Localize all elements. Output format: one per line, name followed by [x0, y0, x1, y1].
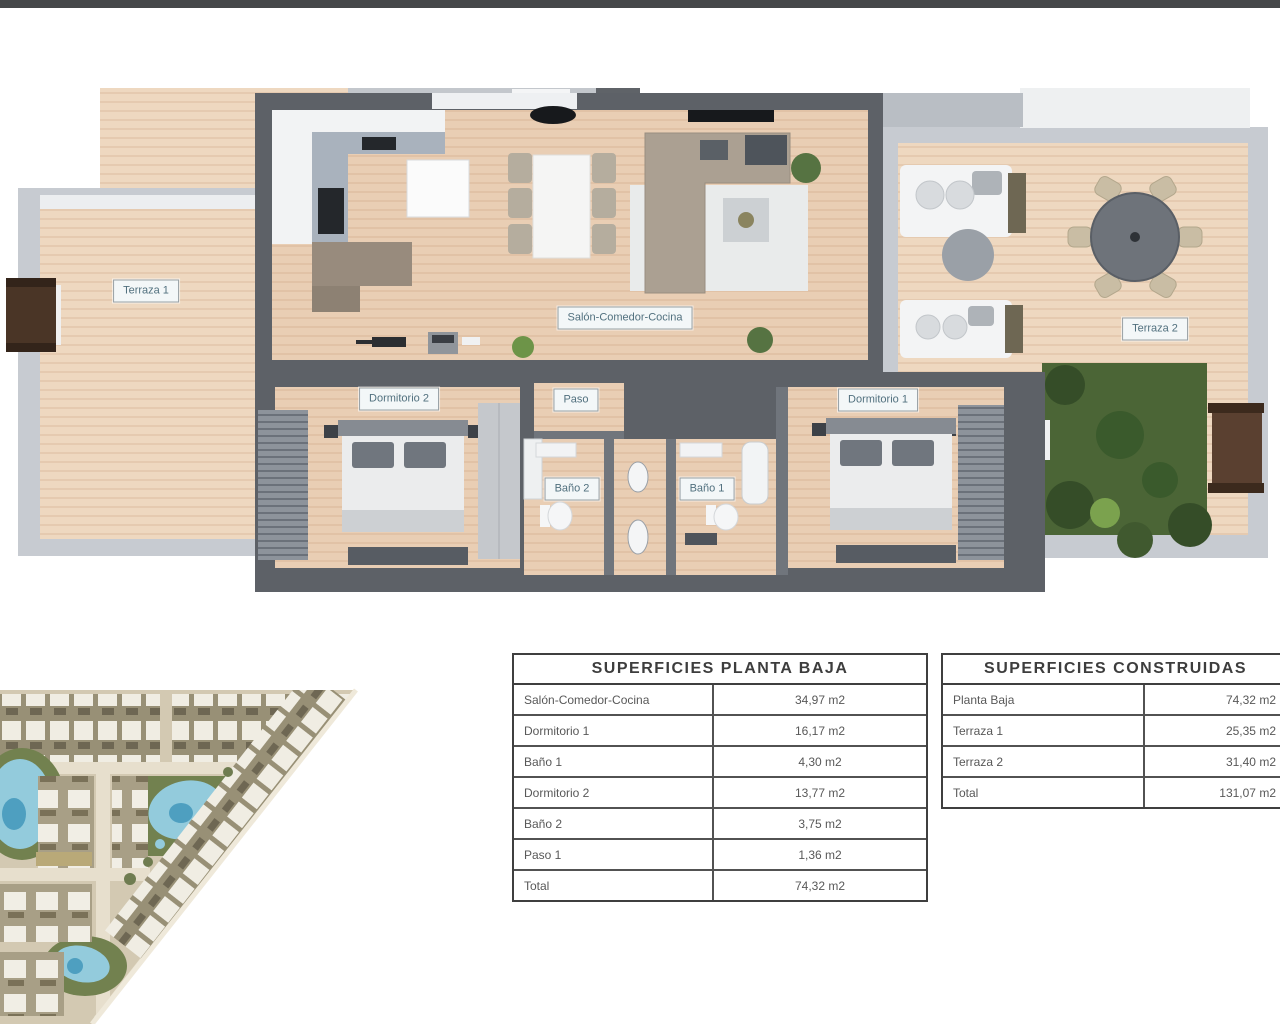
floor-plan: Terraza 1 Salón-Comedor-Cocina Terraza 2… [0, 85, 1280, 605]
oven [318, 188, 344, 234]
bath-corridor [614, 439, 676, 575]
plant [512, 336, 534, 358]
dining-table [533, 155, 590, 258]
room-label-terraza-1: Terraza 1 [113, 280, 179, 303]
terrace-door-brown [6, 278, 61, 352]
plant [747, 327, 773, 353]
window-louvers [258, 410, 308, 560]
room-label-dormitorio-1: Dormitorio 1 [838, 389, 918, 412]
table-row: Baño 2 3,75 m2 [514, 809, 926, 840]
window-louvers [958, 405, 1004, 560]
table-row: Total 74,32 m2 [514, 871, 926, 900]
table-row: Terraza 2 31,40 m2 [943, 747, 1280, 778]
room-label-paso: Paso [553, 389, 598, 412]
table-row: Planta Baja 74,32 m2 [943, 685, 1280, 716]
outdoor-sofa-1 [900, 165, 1026, 237]
house-block [0, 952, 64, 1016]
bano-1 [676, 439, 776, 575]
round-side-table [942, 229, 994, 281]
house-block [112, 776, 148, 868]
top-border-bar [0, 0, 1280, 8]
room-label-dormitorio-2: Dormitorio 2 [359, 388, 439, 411]
dining-set [508, 153, 616, 258]
cooktop [362, 137, 396, 150]
outdoor-sofa-2 [900, 300, 1023, 358]
pergola-door-brown [1208, 403, 1264, 493]
tv [688, 110, 774, 122]
table-superficies-construidas: SUPERFICIES CONSTRUIDAS Planta Baja 74,3… [941, 653, 1280, 809]
table-row: Paso 1 1,36 m2 [514, 840, 926, 871]
table-title-construidas: SUPERFICIES CONSTRUIDAS [943, 655, 1280, 685]
development-site-plan [0, 684, 380, 1024]
table-superficies-planta-baja: SUPERFICIES PLANTA BAJA Salón-Comedor-Co… [512, 653, 928, 902]
bano-2 [524, 439, 614, 575]
ceiling-lamp [530, 106, 576, 124]
brochure-page: Terraza 1 Salón-Comedor-Cocina Terraza 2… [0, 0, 1280, 1024]
table-row: Terraza 1 25,35 m2 [943, 716, 1280, 747]
room-label-terraza-2: Terraza 2 [1122, 318, 1188, 341]
room-label-bano-2: Baño 2 [545, 478, 600, 501]
room-label-bano-1: Baño 1 [680, 478, 735, 501]
bathtub [742, 442, 768, 504]
plant [791, 153, 821, 183]
table-row: Total 131,07 m2 [943, 778, 1280, 807]
living-block [255, 88, 883, 375]
table-row: Dormitorio 1 16,17 m2 [514, 716, 926, 747]
floor-plan-render [0, 85, 1280, 605]
kitchen-island [407, 160, 469, 217]
sofa-zone [630, 110, 808, 293]
table-row: Dormitorio 2 13,77 m2 [514, 778, 926, 809]
table-row: Baño 1 4,30 m2 [514, 747, 926, 778]
room-label-salon: Salón-Comedor-Cocina [558, 307, 693, 330]
garden [1042, 363, 1212, 558]
table-title-planta-baja: SUPERFICIES PLANTA BAJA [514, 655, 926, 685]
house-block [0, 884, 92, 942]
table-row: Salón-Comedor-Cocina 34,97 m2 [514, 685, 926, 716]
